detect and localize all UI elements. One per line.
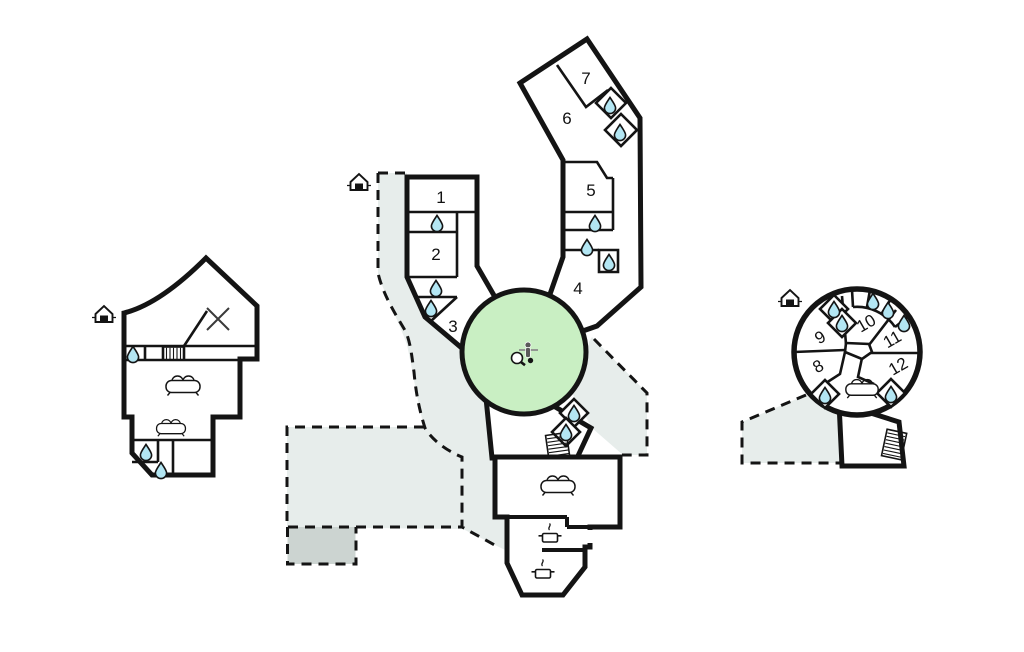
room-label-5: 5 (586, 181, 595, 200)
room-label-7: 7 (581, 69, 590, 88)
stairs-icon (163, 347, 184, 360)
entrance-house-icon (92, 306, 116, 322)
lawn-court (462, 290, 586, 414)
entrance-house-icon (347, 174, 371, 190)
room-label-2: 2 (431, 245, 440, 264)
room-label-6: 6 (562, 109, 571, 128)
room-label-4: 4 (573, 279, 582, 298)
terrace-central-dark (288, 527, 356, 564)
door-gap (586, 530, 594, 543)
entrance-house-icon (778, 290, 802, 306)
lawn-circle (462, 290, 586, 414)
floor-plan-page: 1 2 3 4 5 6 7 8 9 10 11 12 (0, 0, 1024, 652)
room-label-3: 3 (448, 317, 457, 336)
room-label-1: 1 (436, 188, 445, 207)
west-building-outline (124, 258, 257, 475)
floor-plan-canvas: 1 2 3 4 5 6 7 8 9 10 11 12 (0, 0, 1024, 652)
